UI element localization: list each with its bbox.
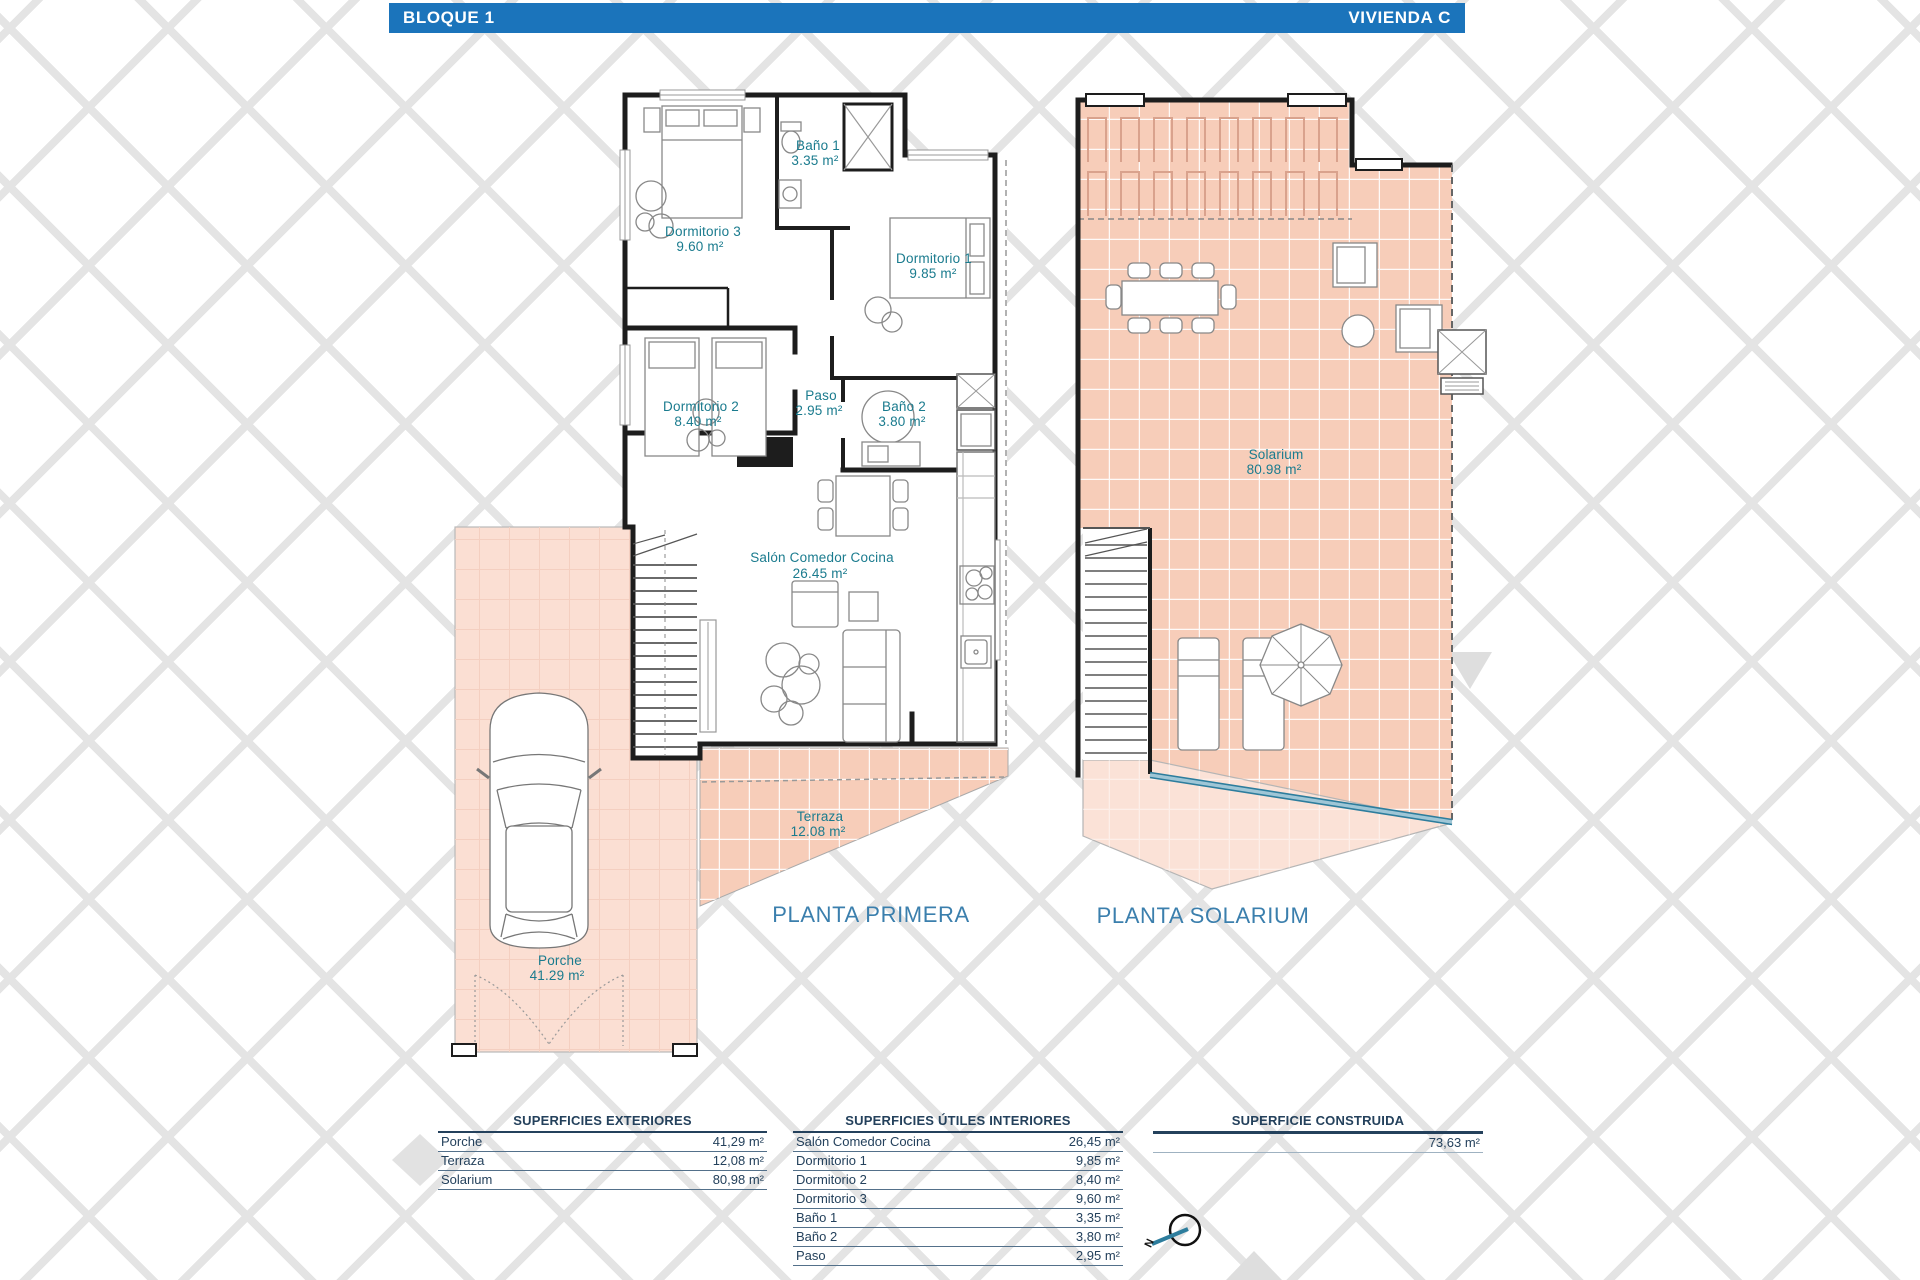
table-row: Dormitorio 19,85 m² [793, 1152, 1123, 1171]
header-bar: BLOQUE 1 VIVIENDA C [389, 3, 1465, 33]
table-row: Terraza12,08 m² [438, 1152, 767, 1171]
room-label-terraza: Terraza [797, 809, 844, 824]
room-area-terraza: 12.08 m² [791, 824, 846, 839]
plan-title-solarium: PLANTA SOLARIUM [1097, 903, 1310, 929]
plan-title-primera: PLANTA PRIMERA [772, 902, 969, 928]
table-row: Paso2,95 m² [793, 1247, 1123, 1266]
solarium-plan: Solarium 80.98 m² [1060, 80, 1500, 910]
table-title: SUPERFICIE CONSTRUIDA [1153, 1112, 1483, 1134]
car-top-view [477, 693, 601, 948]
solarium-stairs [1083, 528, 1150, 774]
table-row: Porche41,29 m² [438, 1133, 767, 1152]
terraza-area [700, 748, 1008, 906]
room-label-dorm3: Dormitorio 3 [665, 224, 741, 239]
room-label-dorm1: Dormitorio 1 [896, 251, 972, 266]
table-row: Salón Comedor Cocina26,45 m² [793, 1133, 1123, 1152]
block-label: BLOQUE 1 [403, 8, 495, 28]
room-area-salon: 26.45 m² [793, 566, 848, 581]
room-label-bano1: Baño 1 [796, 138, 840, 153]
table-row: Dormitorio 28,40 m² [793, 1171, 1123, 1190]
room-area-paso: 2.95 m² [795, 403, 842, 418]
kitchen-fixtures [957, 374, 995, 742]
unit-label: VIVIENDA C [1348, 8, 1451, 28]
table-row: 73,63 m² [1153, 1134, 1483, 1153]
north-compass: N [1130, 1195, 1220, 1275]
solarium-area [1078, 100, 1452, 889]
table-row: Baño 23,80 m² [793, 1228, 1123, 1247]
room-label-bano2: Baño 2 [882, 399, 926, 414]
room-label-dorm2: Dormitorio 2 [663, 399, 739, 414]
room-label-paso: Paso [805, 388, 837, 403]
room-label-solarium: Solarium [1249, 447, 1304, 462]
room-area-dorm2: 8.40 m² [674, 414, 721, 429]
table-title: SUPERFICIES ÚTILES INTERIORES [793, 1112, 1123, 1133]
table-row: Solarium80,98 m² [438, 1171, 767, 1190]
room-area-solarium: 80.98 m² [1247, 462, 1302, 477]
room-area-dorm3: 9.60 m² [676, 239, 723, 254]
table-superficies-exteriores: SUPERFICIES EXTERIORES Porche41,29 m² Te… [438, 1112, 767, 1190]
parasol [1260, 624, 1342, 706]
room-area-bano2: 3.80 m² [878, 414, 925, 429]
table-title: SUPERFICIES EXTERIORES [438, 1112, 767, 1133]
room-area-dorm1: 9.85 m² [909, 266, 956, 281]
room-label-salon: Salón Comedor Cocina [750, 550, 894, 565]
table-row: Dormitorio 39,60 m² [793, 1190, 1123, 1209]
table-superficies-utiles-interiores: SUPERFICIES ÚTILES INTERIORES Salón Come… [793, 1112, 1123, 1266]
table-superficie-construida: SUPERFICIE CONSTRUIDA 73,63 m² [1153, 1112, 1483, 1153]
room-area-porche: 41.29 m² [530, 968, 585, 983]
table-row: Baño 13,35 m² [793, 1209, 1123, 1228]
room-area-bano1: 3.35 m² [791, 153, 838, 168]
room-label-porche: Porche [538, 953, 582, 968]
compass-north-label: N [1143, 1237, 1157, 1249]
rooftop-units [1438, 330, 1486, 394]
